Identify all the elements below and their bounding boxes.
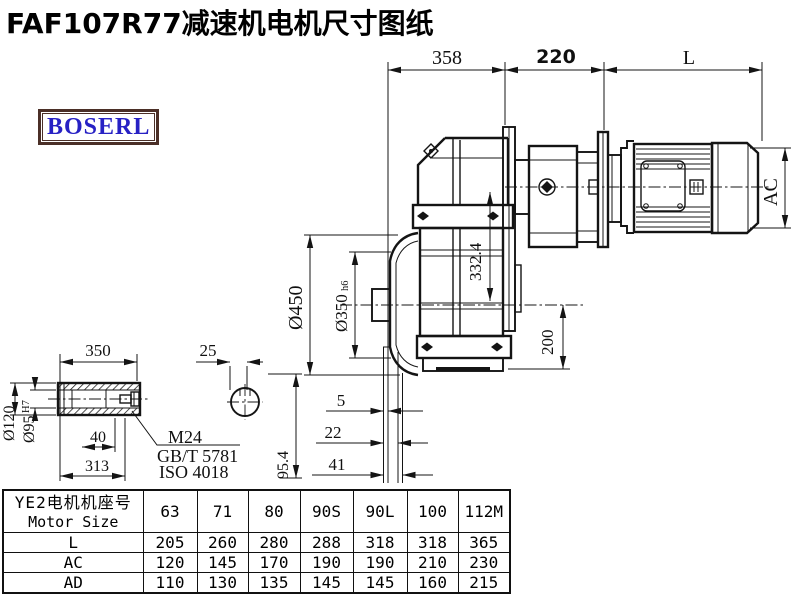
dim-313: 313 [85, 458, 109, 475]
row-label-AD: AD [3, 573, 143, 594]
table-col-71: 71 [197, 490, 248, 533]
table-cell: 205 [143, 533, 197, 553]
table-col-112M: 112M [458, 490, 510, 533]
table-header-row: YE2电机机座号 Motor Size 63 71 80 90S 90L 100… [3, 490, 510, 533]
dim-200-group: 200 [508, 305, 570, 369]
table-col-90L: 90L [353, 490, 407, 533]
table-cell: 110 [143, 573, 197, 594]
dim-22: 22 [325, 423, 342, 442]
label-std-iso: ISO 4018 [159, 462, 229, 482]
row-label-AC: AC [3, 553, 143, 573]
table-col-100: 100 [407, 490, 458, 533]
table-cell: 120 [143, 553, 197, 573]
dim-L: L [683, 47, 695, 69]
dim-dia120: Ø120 [1, 405, 18, 441]
dim-358: 358 [432, 47, 462, 69]
dim-5-22-41-group: 5 22 41 [312, 391, 433, 475]
table-cell: 280 [248, 533, 300, 553]
dim-dia95: Ø95 [21, 415, 38, 443]
table-cell: 170 [248, 553, 300, 573]
dim-5: 5 [337, 391, 346, 410]
input-adapter [515, 132, 608, 247]
dim-350: 350 [85, 341, 111, 360]
table-cell: 145 [353, 573, 407, 594]
table-row-AD: AD 110 130 135 145 145 160 215 [3, 573, 510, 594]
table-row-AC: AC 120 145 170 190 190 210 230 [3, 553, 510, 573]
row-label-L: L [3, 533, 143, 553]
dim-200: 200 [538, 330, 557, 356]
table-cell: 130 [197, 573, 248, 594]
label-thread: M24 [168, 427, 202, 447]
table-cell: 210 [407, 553, 458, 573]
motor-size-table: YE2电机机座号 Motor Size 63 71 80 90S 90L 100… [2, 489, 511, 594]
dim-25: 25 [200, 341, 217, 360]
table-cell: 318 [353, 533, 407, 553]
dim-dia95-tol: H7 [21, 400, 32, 413]
table-cell: 190 [353, 553, 407, 573]
table-cell: 230 [458, 553, 510, 573]
output-flange [372, 233, 418, 375]
dim-dia350-tol: h6 [340, 281, 351, 292]
table-header-cn: YE2电机机座号 [4, 493, 143, 513]
table-cell: 288 [300, 533, 353, 553]
dim-dia450: Ø450 [285, 286, 307, 330]
table-cell: 135 [248, 573, 300, 594]
shaft-face-lines [384, 62, 403, 483]
table-row-L: L 205 260 280 288 318 318 365 [3, 533, 510, 553]
table-cell: 190 [300, 553, 353, 573]
table-cell: 145 [300, 573, 353, 594]
table-header-motor-size: YE2电机机座号 Motor Size [3, 490, 143, 533]
dim-332: 332.4 [466, 242, 485, 281]
dim-ac-group: AC [750, 148, 791, 228]
dim-332-group: 332.4 [466, 192, 490, 301]
table-cell: 215 [458, 573, 510, 594]
table-header-en: Motor Size [4, 513, 143, 531]
table-col-63: 63 [143, 490, 197, 533]
dim-40: 40 [90, 429, 106, 446]
table-col-80: 80 [248, 490, 300, 533]
table-cell: 160 [407, 573, 458, 594]
table-col-90S: 90S [300, 490, 353, 533]
table-cell: 318 [407, 533, 458, 553]
dim-AC: AC [760, 178, 782, 206]
table-cell: 365 [458, 533, 510, 553]
top-dimensions: 358 220 L [388, 46, 762, 141]
table-cell: 260 [197, 533, 248, 553]
table-cell: 145 [197, 553, 248, 573]
dim-220: 220 [536, 46, 576, 68]
dim-95-4: 95.4 [275, 451, 292, 479]
dim-dia350: Ø350 [332, 294, 351, 332]
dim-41: 41 [329, 455, 346, 474]
